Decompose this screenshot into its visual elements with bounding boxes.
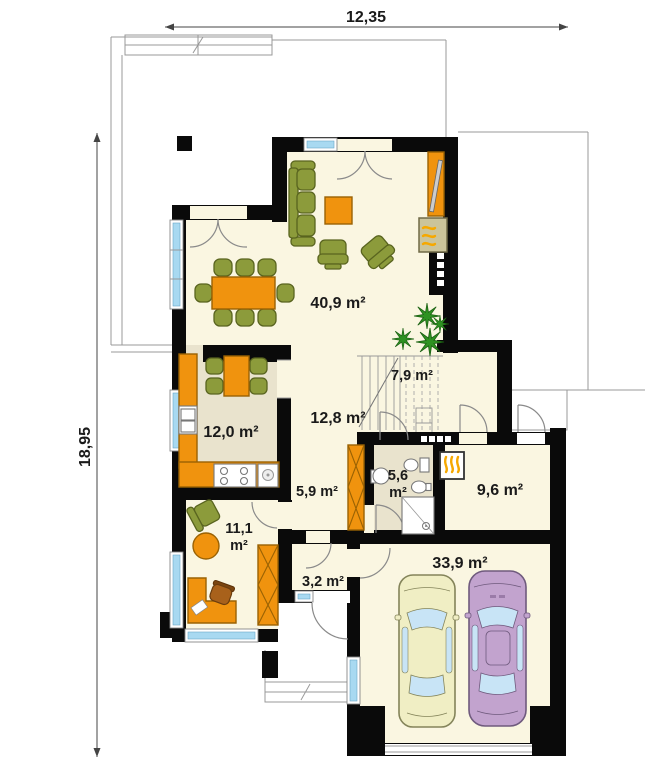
window-office-west xyxy=(170,552,183,628)
rear-window xyxy=(409,675,445,697)
chair xyxy=(236,309,254,326)
fireplace xyxy=(419,218,447,252)
window-vestibule-south xyxy=(295,591,313,602)
label-bathroom-1: 5,6 xyxy=(388,468,408,484)
arrow-right-icon xyxy=(559,24,568,31)
label-bathroom-2: m² xyxy=(389,485,407,501)
window-office-south xyxy=(185,629,258,642)
kitchen-sink xyxy=(179,406,197,434)
kitchen-appliance xyxy=(258,464,278,487)
terrace-pillar xyxy=(177,136,192,151)
arrow-down-icon xyxy=(94,748,101,757)
mirror xyxy=(465,613,471,618)
chair xyxy=(206,358,223,374)
chair xyxy=(214,309,232,326)
dimension-left: 18,95 xyxy=(77,133,101,757)
label-garage: 33,9 m² xyxy=(432,555,487,572)
wardrobe-office xyxy=(258,545,278,625)
mirror xyxy=(453,615,459,620)
window-dining-west xyxy=(170,220,183,309)
door-utility-porch xyxy=(518,405,545,432)
round-table xyxy=(193,533,219,559)
porch-pillar xyxy=(262,651,278,678)
arrow-up-icon xyxy=(94,133,101,142)
coffee-table xyxy=(325,197,352,224)
armchair-1 xyxy=(318,240,348,269)
label-living: 40,9 m² xyxy=(310,295,365,312)
dimension-width-label: 12,35 xyxy=(346,9,386,26)
mirror xyxy=(524,613,530,618)
plant-icon xyxy=(392,328,414,350)
tv-cabinet xyxy=(428,152,444,216)
plant-icon xyxy=(431,315,449,333)
window-garage-west xyxy=(347,657,360,704)
dimension-top: 12,35 xyxy=(165,9,568,31)
label-vestibule: 3,2 m² xyxy=(302,574,344,590)
chair xyxy=(250,378,267,394)
chair xyxy=(236,259,254,276)
rear-window xyxy=(479,673,516,695)
plant-icon xyxy=(414,303,440,329)
label-kitchen: 12,0 m² xyxy=(203,424,258,441)
chair xyxy=(206,378,223,394)
chair xyxy=(258,309,276,326)
chair xyxy=(250,358,267,374)
floor-plan-page: 40,9 m² 7,9 m² 12,8 m² 12,0 m² 5,9 m² 5,… xyxy=(0,0,650,768)
label-corridor: 5,9 m² xyxy=(296,484,338,500)
bath-sink xyxy=(371,468,389,484)
utility-porch-steps xyxy=(508,390,567,430)
furnace xyxy=(440,452,464,479)
car-yellow xyxy=(395,575,459,727)
dining-table xyxy=(212,277,275,309)
label-utility: 9,6 m² xyxy=(477,482,523,499)
chair xyxy=(195,284,212,302)
windshield xyxy=(407,609,447,631)
shower xyxy=(402,497,434,534)
chair xyxy=(258,259,276,276)
wardrobe-corridor xyxy=(348,445,364,530)
dimension-height-label: 18,95 xyxy=(77,427,94,467)
sofa xyxy=(289,161,315,246)
label-office-1: 11,1 xyxy=(225,521,252,537)
kitchen-table xyxy=(224,356,249,396)
label-stairs: 7,9 m² xyxy=(391,368,433,384)
stove xyxy=(214,464,256,487)
kitchen-pass-through xyxy=(277,360,291,398)
windshield xyxy=(477,607,518,629)
floor-plan: 40,9 m² 7,9 m² 12,8 m² 12,0 m² 5,9 m² 5,… xyxy=(0,0,650,768)
label-hall: 12,8 m² xyxy=(310,410,365,427)
chair xyxy=(277,284,294,302)
chair xyxy=(214,259,232,276)
mirror xyxy=(395,615,401,620)
car-purple xyxy=(465,571,530,726)
arrow-left-icon xyxy=(165,24,174,31)
door-front-entrance xyxy=(312,603,348,639)
window-living-north xyxy=(304,138,337,151)
label-office-2: m² xyxy=(230,538,248,554)
